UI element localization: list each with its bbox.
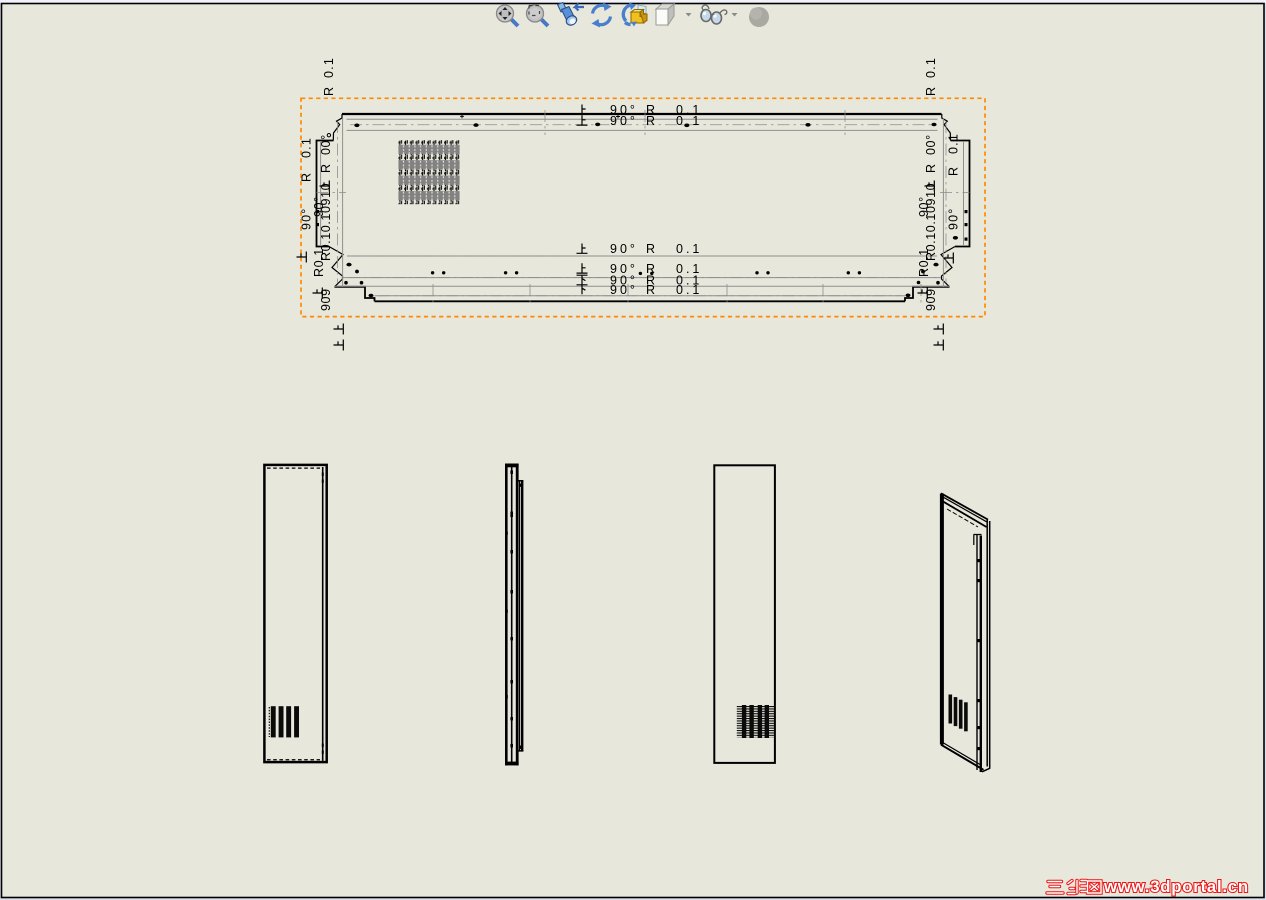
svg-text:0.1: 0.1 (676, 114, 702, 128)
svg-text:90°: 90° (610, 242, 638, 256)
svg-text:R: R (646, 283, 658, 297)
svg-text:R: R (646, 242, 658, 256)
svg-text:R: R (646, 114, 658, 128)
svg-text:0.1: 0.1 (676, 242, 702, 256)
svg-text:90°: 90° (610, 283, 638, 297)
svg-text:www.3dportal.cn: www.3dportal.cn (1103, 877, 1249, 896)
svg-text:R0.1: R0.1 (924, 57, 938, 96)
svg-text:90°: 90° (610, 114, 638, 128)
svg-text:0.1: 0.1 (676, 283, 702, 297)
svg-text:R0.1: R0.1 (322, 57, 336, 96)
